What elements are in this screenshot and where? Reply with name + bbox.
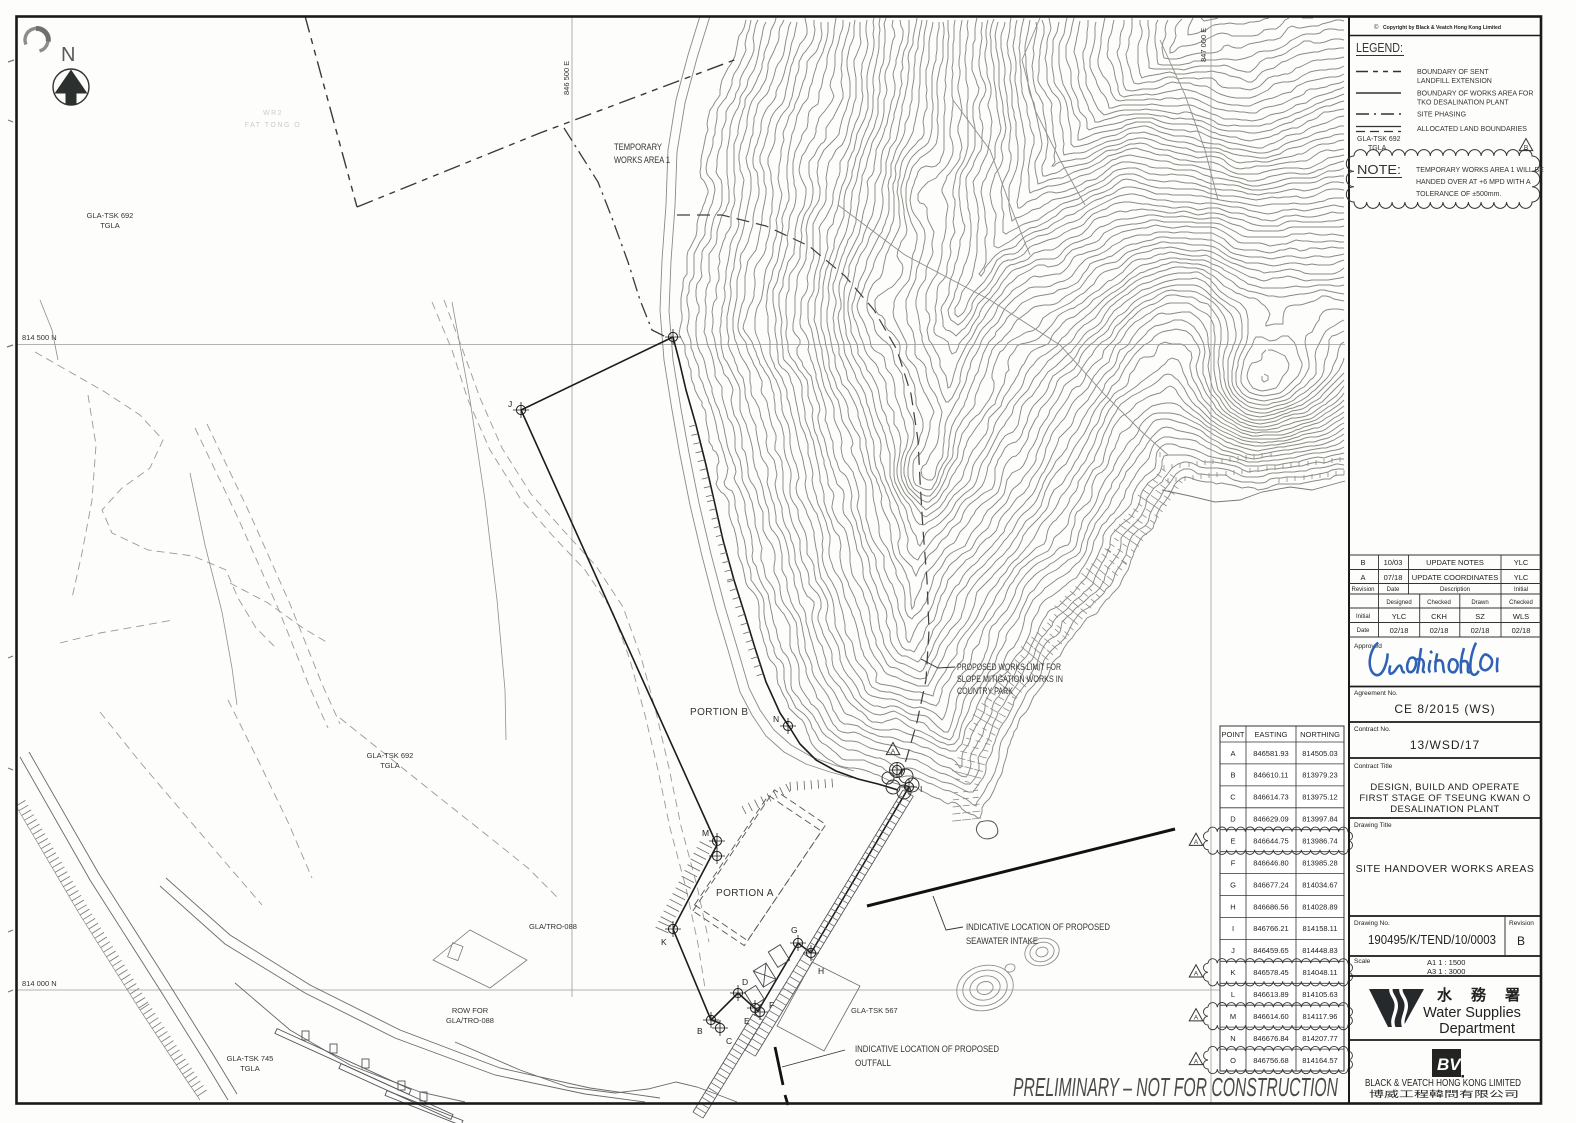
svg-text:Drawn: Drawn	[1471, 600, 1488, 606]
svg-text:EASTING: EASTING	[1255, 730, 1288, 739]
svg-text:TGLA: TGLA	[240, 1064, 260, 1073]
svg-text:G: G	[791, 925, 798, 935]
svg-text:A: A	[1360, 573, 1365, 582]
svg-text:BOUNDARY OF SENT: BOUNDARY OF SENT	[1417, 69, 1489, 76]
svg-text:TGLA: TGLA	[100, 221, 120, 230]
svg-text:ROW FOR: ROW FOR	[452, 1006, 489, 1015]
svg-text:A: A	[1194, 1015, 1199, 1022]
svg-text:Agreement No.: Agreement No.	[1354, 690, 1398, 697]
svg-text:813986.74: 813986.74	[1302, 837, 1337, 846]
svg-text:GLA/TRO-088: GLA/TRO-088	[446, 1016, 494, 1025]
svg-text:846766.21: 846766.21	[1253, 924, 1288, 933]
svg-text:WR2: WR2	[263, 110, 283, 117]
svg-text:I: I	[1232, 924, 1234, 933]
svg-text:GLA/TRO-088: GLA/TRO-088	[529, 922, 577, 931]
svg-text:TEMPORARY WORKS AREA 1 WILL BE: TEMPORARY WORKS AREA 1 WILL BE	[1416, 167, 1544, 174]
svg-text:Checked: Checked	[1509, 600, 1533, 606]
svg-text:TEMPORARY: TEMPORARY	[614, 142, 663, 153]
svg-text:846756.68: 846756.68	[1253, 1056, 1288, 1065]
svg-text:OUTFALL: OUTFALL	[855, 1058, 891, 1069]
svg-text:A: A	[1230, 749, 1235, 758]
svg-text:LANDFILL EXTENSION: LANDFILL EXTENSION	[1417, 78, 1492, 85]
svg-text:I: I	[920, 784, 922, 794]
svg-text:Date: Date	[1387, 587, 1400, 593]
svg-text:E: E	[744, 1016, 750, 1026]
svg-text:K: K	[661, 937, 667, 947]
svg-text:A: A	[891, 748, 896, 755]
svg-text:Checked: Checked	[1427, 600, 1451, 606]
svg-text:Department: Department	[1439, 1021, 1515, 1037]
svg-text:Scale: Scale	[1354, 958, 1371, 965]
svg-text:PORTION B: PORTION B	[690, 707, 748, 718]
svg-text:Revision: Revision	[1509, 920, 1534, 927]
svg-text:814505.03: 814505.03	[1302, 749, 1337, 758]
svg-text:F: F	[769, 1000, 774, 1010]
svg-text:846610.11: 846610.11	[1254, 771, 1289, 780]
svg-text:水務署: 水務署	[1437, 986, 1539, 1004]
svg-text:N: N	[61, 44, 75, 66]
svg-text:WORKS AREA 1: WORKS AREA 1	[614, 155, 670, 166]
svg-text:BLACK & VEATCH HONG KONG LIMIT: BLACK & VEATCH HONG KONG LIMITED	[1365, 1078, 1521, 1089]
svg-text:814105.63: 814105.63	[1302, 990, 1337, 999]
svg-text:NORTHING: NORTHING	[1300, 730, 1340, 739]
svg-text:13/WSD/17: 13/WSD/17	[1410, 738, 1480, 752]
svg-text:PORTION A: PORTION A	[716, 888, 774, 899]
svg-text:02/18: 02/18	[1430, 626, 1449, 635]
svg-text:Contract Title: Contract Title	[1354, 763, 1393, 770]
svg-text:D: D	[1230, 815, 1236, 824]
svg-text:YLC: YLC	[1392, 612, 1407, 621]
svg-text:C: C	[1230, 793, 1236, 802]
svg-text:HANDED OVER AT +6 MPD WITH A: HANDED OVER AT +6 MPD WITH A	[1416, 179, 1531, 186]
svg-text:E: E	[1230, 837, 1235, 846]
svg-text:YLC: YLC	[1514, 573, 1529, 582]
svg-text:BOUNDARY OF WORKS AREA FOR: BOUNDARY OF WORKS AREA FOR	[1417, 91, 1533, 98]
svg-text:SITE PHASING: SITE PHASING	[1417, 112, 1466, 119]
svg-text:DESALINATION PLANT: DESALINATION PLANT	[1390, 804, 1499, 815]
svg-text:INDICATIVE LOCATION OF PROPOSE: INDICATIVE LOCATION OF PROPOSED	[966, 922, 1110, 933]
svg-text:A: A	[1194, 839, 1199, 846]
svg-text:B: B	[1360, 558, 1365, 567]
svg-text:N: N	[773, 714, 779, 724]
svg-text:190495/K/TEND/10/0003: 190495/K/TEND/10/0003	[1368, 932, 1496, 947]
svg-text:POINT: POINT	[1222, 730, 1245, 739]
svg-text:A: A	[1194, 1058, 1199, 1065]
svg-text:D: D	[742, 977, 748, 987]
svg-text:846686.56: 846686.56	[1253, 902, 1288, 911]
svg-text:B: B	[1230, 771, 1235, 780]
svg-text:Contract No.: Contract No.	[1354, 726, 1391, 733]
svg-text:846646.80: 846646.80	[1253, 858, 1288, 867]
svg-text:G: G	[1230, 880, 1236, 889]
svg-text:813997.84: 813997.84	[1302, 815, 1337, 824]
svg-text:Designed: Designed	[1386, 600, 1411, 606]
svg-text:UPDATE COORDINATES: UPDATE COORDINATES	[1412, 573, 1498, 582]
svg-text:814158.11: 814158.11	[1303, 924, 1338, 933]
svg-text:846578.45: 846578.45	[1253, 968, 1288, 977]
svg-text:Water Supplies: Water Supplies	[1423, 1005, 1521, 1021]
svg-text:Drawing No.: Drawing No.	[1354, 920, 1390, 927]
svg-text:UPDATE NOTES: UPDATE NOTES	[1426, 558, 1484, 567]
svg-text:FAT TONG O: FAT TONG O	[245, 122, 302, 129]
svg-text:813985.28: 813985.28	[1302, 858, 1337, 867]
svg-text:TGLA: TGLA	[380, 761, 400, 770]
svg-text:FIRST STAGE OF TSEUNG KWAN O: FIRST STAGE OF TSEUNG KWAN O	[1359, 793, 1530, 804]
svg-text:02/18: 02/18	[1512, 626, 1531, 635]
svg-text:07/18: 07/18	[1384, 573, 1403, 582]
svg-text:846676.84: 846676.84	[1253, 1034, 1288, 1043]
svg-text:BV: BV	[1437, 1055, 1462, 1074]
svg-text:846629.09: 846629.09	[1253, 815, 1288, 824]
svg-text:Initial: Initial	[1514, 587, 1528, 593]
svg-text:A3 1 : 3000: A3 1 : 3000	[1427, 967, 1465, 976]
svg-text:GLA-TSK 692: GLA-TSK 692	[367, 751, 414, 760]
svg-text:814034.67: 814034.67	[1302, 880, 1337, 889]
svg-text:DESIGN, BUILD AND OPERATE: DESIGN, BUILD AND OPERATE	[1370, 782, 1519, 793]
svg-text:M: M	[702, 828, 709, 838]
svg-text:GLA-TSK 745: GLA-TSK 745	[227, 1054, 274, 1063]
svg-text:814207.77: 814207.77	[1302, 1034, 1337, 1043]
svg-text:813975.12: 813975.12	[1302, 793, 1337, 802]
svg-text:PROPOSED WORKS LIMIT FOR: PROPOSED WORKS LIMIT FOR	[957, 662, 1061, 672]
svg-text:PRELIMINARY – NOT FOR CONSTR: PRELIMINARY – NOT FOR CONSTRUCTION	[1013, 1072, 1338, 1102]
svg-text:L: L	[1231, 990, 1235, 999]
svg-text:846581.93: 846581.93	[1253, 749, 1288, 758]
svg-text:N: N	[1230, 1034, 1235, 1043]
svg-text:SEAWATER INTAKE: SEAWATER INTAKE	[966, 936, 1038, 947]
svg-text:K: K	[1230, 968, 1235, 977]
svg-text:814 500 N: 814 500 N	[22, 333, 57, 342]
svg-text:F: F	[1231, 858, 1236, 867]
svg-text:846644.75: 846644.75	[1253, 837, 1288, 846]
svg-text:M: M	[1230, 1012, 1236, 1021]
svg-text:C: C	[726, 1036, 732, 1046]
svg-text:COUNTRY PARK: COUNTRY PARK	[957, 686, 1013, 696]
svg-text:813979.23: 813979.23	[1302, 771, 1337, 780]
svg-text:814117.96: 814117.96	[1303, 1012, 1338, 1021]
svg-text:A1 1 : 1500: A1 1 : 1500	[1427, 958, 1465, 967]
svg-text:GLA-TSK 692: GLA-TSK 692	[1357, 136, 1401, 143]
svg-text:814 000 N: 814 000 N	[22, 979, 57, 988]
svg-text:Drawing Title: Drawing Title	[1354, 822, 1392, 829]
svg-text:846 500 E: 846 500 E	[562, 61, 571, 95]
svg-text:H: H	[1230, 902, 1235, 911]
svg-text:846459.65: 846459.65	[1253, 946, 1288, 955]
svg-text:SLOPE MITIGATION WORKS IN: SLOPE MITIGATION WORKS IN	[957, 674, 1063, 684]
svg-text:©: ©	[1374, 24, 1379, 31]
svg-text:10/03: 10/03	[1384, 558, 1403, 567]
svg-text:YLC: YLC	[1514, 558, 1529, 567]
svg-text:Copyright by Black & Veatch Ho: Copyright by Black & Veatch Hong Kong Li…	[1383, 25, 1501, 31]
svg-text:J: J	[1231, 946, 1235, 955]
svg-text:814028.89: 814028.89	[1302, 902, 1337, 911]
svg-text:814048.11: 814048.11	[1303, 968, 1338, 977]
svg-text:CKH: CKH	[1431, 612, 1447, 621]
svg-text:814164.57: 814164.57	[1302, 1056, 1337, 1065]
svg-text:TKO DESALINATION PLANT: TKO DESALINATION PLANT	[1417, 100, 1509, 107]
svg-text:LEGEND:: LEGEND:	[1356, 40, 1403, 55]
svg-text:B: B	[1517, 934, 1525, 948]
svg-text:J: J	[508, 399, 512, 409]
svg-text:ALLOCATED LAND BOUNDARIES: ALLOCATED LAND BOUNDARIES	[1417, 126, 1527, 133]
svg-text:846613.89: 846613.89	[1253, 990, 1288, 999]
svg-text:O: O	[1230, 1056, 1236, 1065]
svg-text:846614.60: 846614.60	[1253, 1012, 1288, 1021]
svg-text:博威工程韓問有限公司: 博威工程韓問有限公司	[1369, 1089, 1519, 1099]
svg-text:TOLERANCE OF ±500mm.: TOLERANCE OF ±500mm.	[1416, 191, 1501, 198]
svg-text:Revision: Revision	[1351, 587, 1374, 593]
svg-text:847 000 E: 847 000 E	[1199, 28, 1208, 62]
svg-text:INDICATIVE LOCATION OF PROPOSE: INDICATIVE LOCATION OF PROPOSED	[855, 1044, 999, 1055]
svg-text:846677.24: 846677.24	[1253, 880, 1288, 889]
svg-text:SITE HANDOVER WORKS AREAS: SITE HANDOVER WORKS AREAS	[1356, 863, 1535, 875]
svg-text:Description: Description	[1440, 587, 1470, 593]
svg-text:A: A	[1194, 971, 1199, 978]
svg-text:SZ: SZ	[1475, 612, 1485, 621]
svg-text:NOTE:: NOTE:	[1357, 162, 1401, 177]
svg-text:02/18: 02/18	[1390, 626, 1409, 635]
svg-text:WLS: WLS	[1513, 612, 1529, 621]
svg-text:B: B	[697, 1026, 703, 1036]
svg-text:846614.73: 846614.73	[1253, 793, 1288, 802]
svg-text:CE 8/2015 (WS): CE 8/2015 (WS)	[1394, 702, 1495, 716]
svg-text:H: H	[818, 966, 824, 976]
svg-text:GLA-TSK 567: GLA-TSK 567	[851, 1006, 898, 1015]
svg-text:814448.83: 814448.83	[1302, 946, 1337, 955]
svg-text:Date: Date	[1357, 628, 1370, 634]
svg-text:GLA-TSK 692: GLA-TSK 692	[87, 211, 134, 220]
svg-text:02/18: 02/18	[1471, 626, 1490, 635]
svg-text:Initial: Initial	[1356, 614, 1370, 620]
